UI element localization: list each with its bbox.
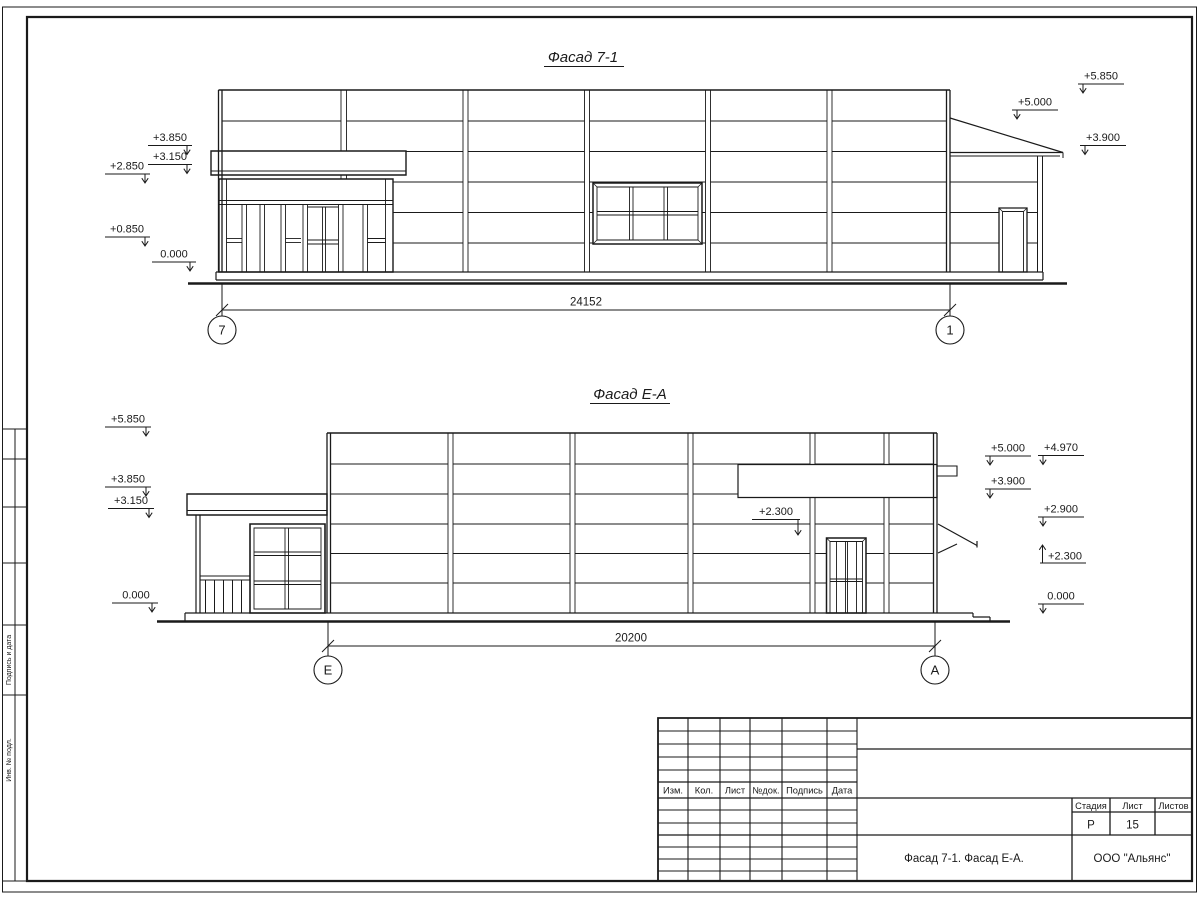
elevation-mark: +5.000 (1018, 97, 1052, 109)
stage-label: Стадия (1075, 801, 1107, 811)
elevation-mark: +3.150 (153, 151, 187, 163)
company-name: ООО "Альянс" (1094, 853, 1171, 865)
drawing-sheet: Подпись и дата Инв. № подл. (0, 0, 1200, 900)
rev-col-dok: №док. (752, 786, 779, 796)
facade1-window (593, 183, 702, 244)
facade2-door (827, 538, 867, 613)
elevation-mark: 0.000 (122, 590, 150, 602)
axis-label-7: 7 (218, 323, 225, 338)
elevation-mark: +3.900 (1086, 132, 1120, 144)
fascia-band (738, 465, 937, 498)
elevation-mark: +0.850 (110, 224, 144, 236)
side-canopy-bracket (938, 524, 977, 553)
rev-col-data: Дата (832, 786, 853, 796)
facade-7-1-drawing (188, 90, 1067, 284)
sheet-number: 15 (1126, 820, 1139, 832)
elevation-mark: +3.850 (153, 132, 187, 144)
rev-col-podpis: Подпись (786, 786, 823, 796)
facade1-title: Фасад 7-1 (548, 49, 618, 66)
elevation-mark: 0.000 (160, 249, 188, 261)
side-stamp-inv-label: Инв. № подл. (6, 738, 13, 782)
facade1-annex-door (999, 208, 1027, 272)
elevation-mark: +5.850 (1084, 71, 1118, 83)
sheets-label: Листов (1158, 801, 1188, 811)
elevation-mark-leader: +2.300 (759, 506, 793, 518)
facade2-annex (187, 494, 327, 613)
axis-label-a: А (931, 663, 940, 678)
elevation-mark: +2.900 (1044, 504, 1078, 516)
facade-e-a-drawing (157, 433, 1010, 622)
elevation-mark: +3.900 (991, 476, 1025, 488)
sheet-label: Лист (1122, 801, 1143, 811)
elevation-mark: +2.850 (110, 161, 144, 173)
elevation-mark: +3.850 (111, 474, 145, 486)
drawing-canvas: Подпись и дата Инв. № подл. (0, 0, 1200, 900)
elevation-mark: +2.300 (1048, 551, 1082, 563)
elevation-mark: 0.000 (1047, 591, 1075, 603)
doc-title: Фасад 7-1. Фасад Е-А. (904, 853, 1024, 865)
railing (200, 576, 250, 613)
elevation-mark: +3.150 (114, 495, 148, 507)
fascia-band-tab (937, 466, 957, 476)
axis-label-1: 1 (946, 323, 953, 338)
stage-value: Р (1087, 820, 1095, 832)
side-stamp-sign-date-label: Подпись и дата (6, 635, 13, 685)
storefront-glazing (219, 179, 393, 272)
facade2-dimension-text: 20200 (615, 633, 647, 645)
elevation-mark: +5.850 (111, 414, 145, 426)
rev-col-izm: Изм. (663, 786, 683, 796)
axis-label-e: Е (324, 663, 333, 678)
facade1-annex (950, 118, 1063, 272)
facade2-window (250, 524, 325, 613)
elevation-mark: +4.970 (1044, 442, 1078, 454)
facade1-dimension-text: 24152 (570, 297, 602, 309)
rev-col-kol: Кол. (695, 786, 713, 796)
rev-col-list: Лист (725, 786, 746, 796)
facade2-title: Фасад Е-А (593, 386, 667, 403)
elevation-mark: +5.000 (991, 443, 1025, 455)
